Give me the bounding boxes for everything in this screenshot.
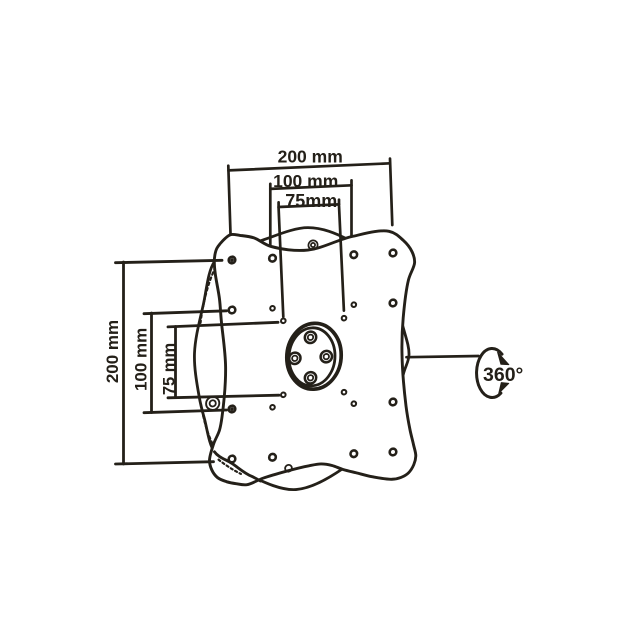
svg-text:100 mm: 100 mm	[273, 171, 338, 191]
svg-text:200 mm: 200 mm	[103, 320, 122, 383]
svg-text:360°: 360°	[483, 364, 523, 386]
svg-text:75mm: 75mm	[285, 191, 337, 211]
svg-text:200 mm: 200 mm	[278, 146, 343, 166]
svg-text:100 mm: 100 mm	[132, 328, 151, 391]
svg-text:75 mm: 75 mm	[161, 343, 179, 395]
